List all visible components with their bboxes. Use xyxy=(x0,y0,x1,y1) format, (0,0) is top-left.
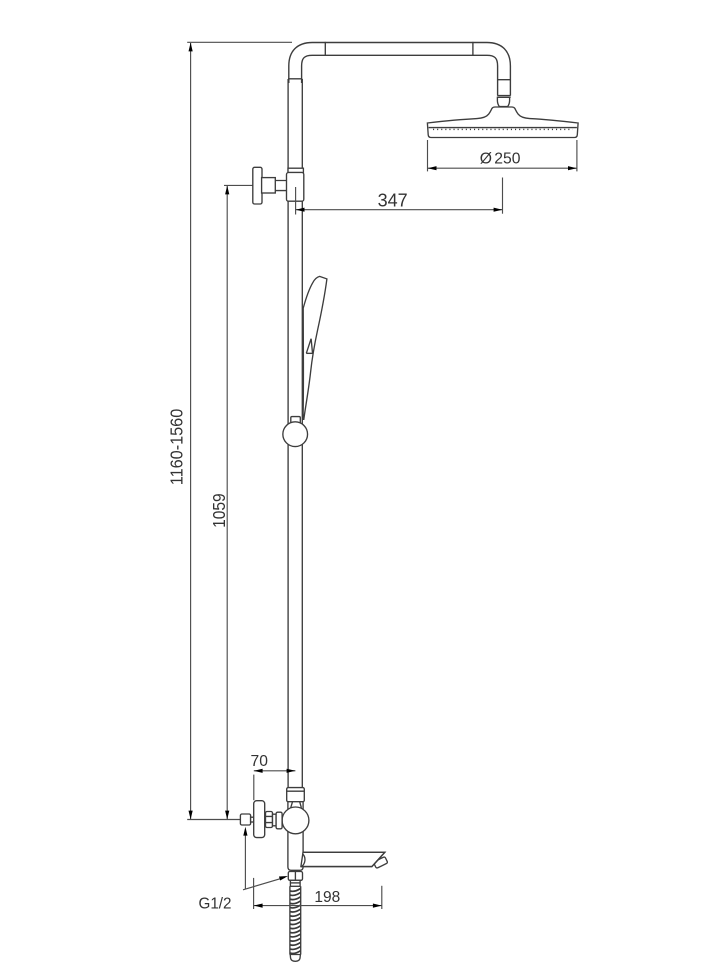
svg-text:347: 347 xyxy=(378,190,408,210)
svg-text:1160-1560: 1160-1560 xyxy=(167,409,187,486)
svg-text:70: 70 xyxy=(251,753,268,770)
svg-text:Ø: Ø xyxy=(480,150,492,167)
svg-text:198: 198 xyxy=(314,889,340,906)
svg-text:250: 250 xyxy=(494,150,520,167)
svg-text:G1/2: G1/2 xyxy=(199,895,232,912)
svg-text:1059: 1059 xyxy=(209,493,229,528)
